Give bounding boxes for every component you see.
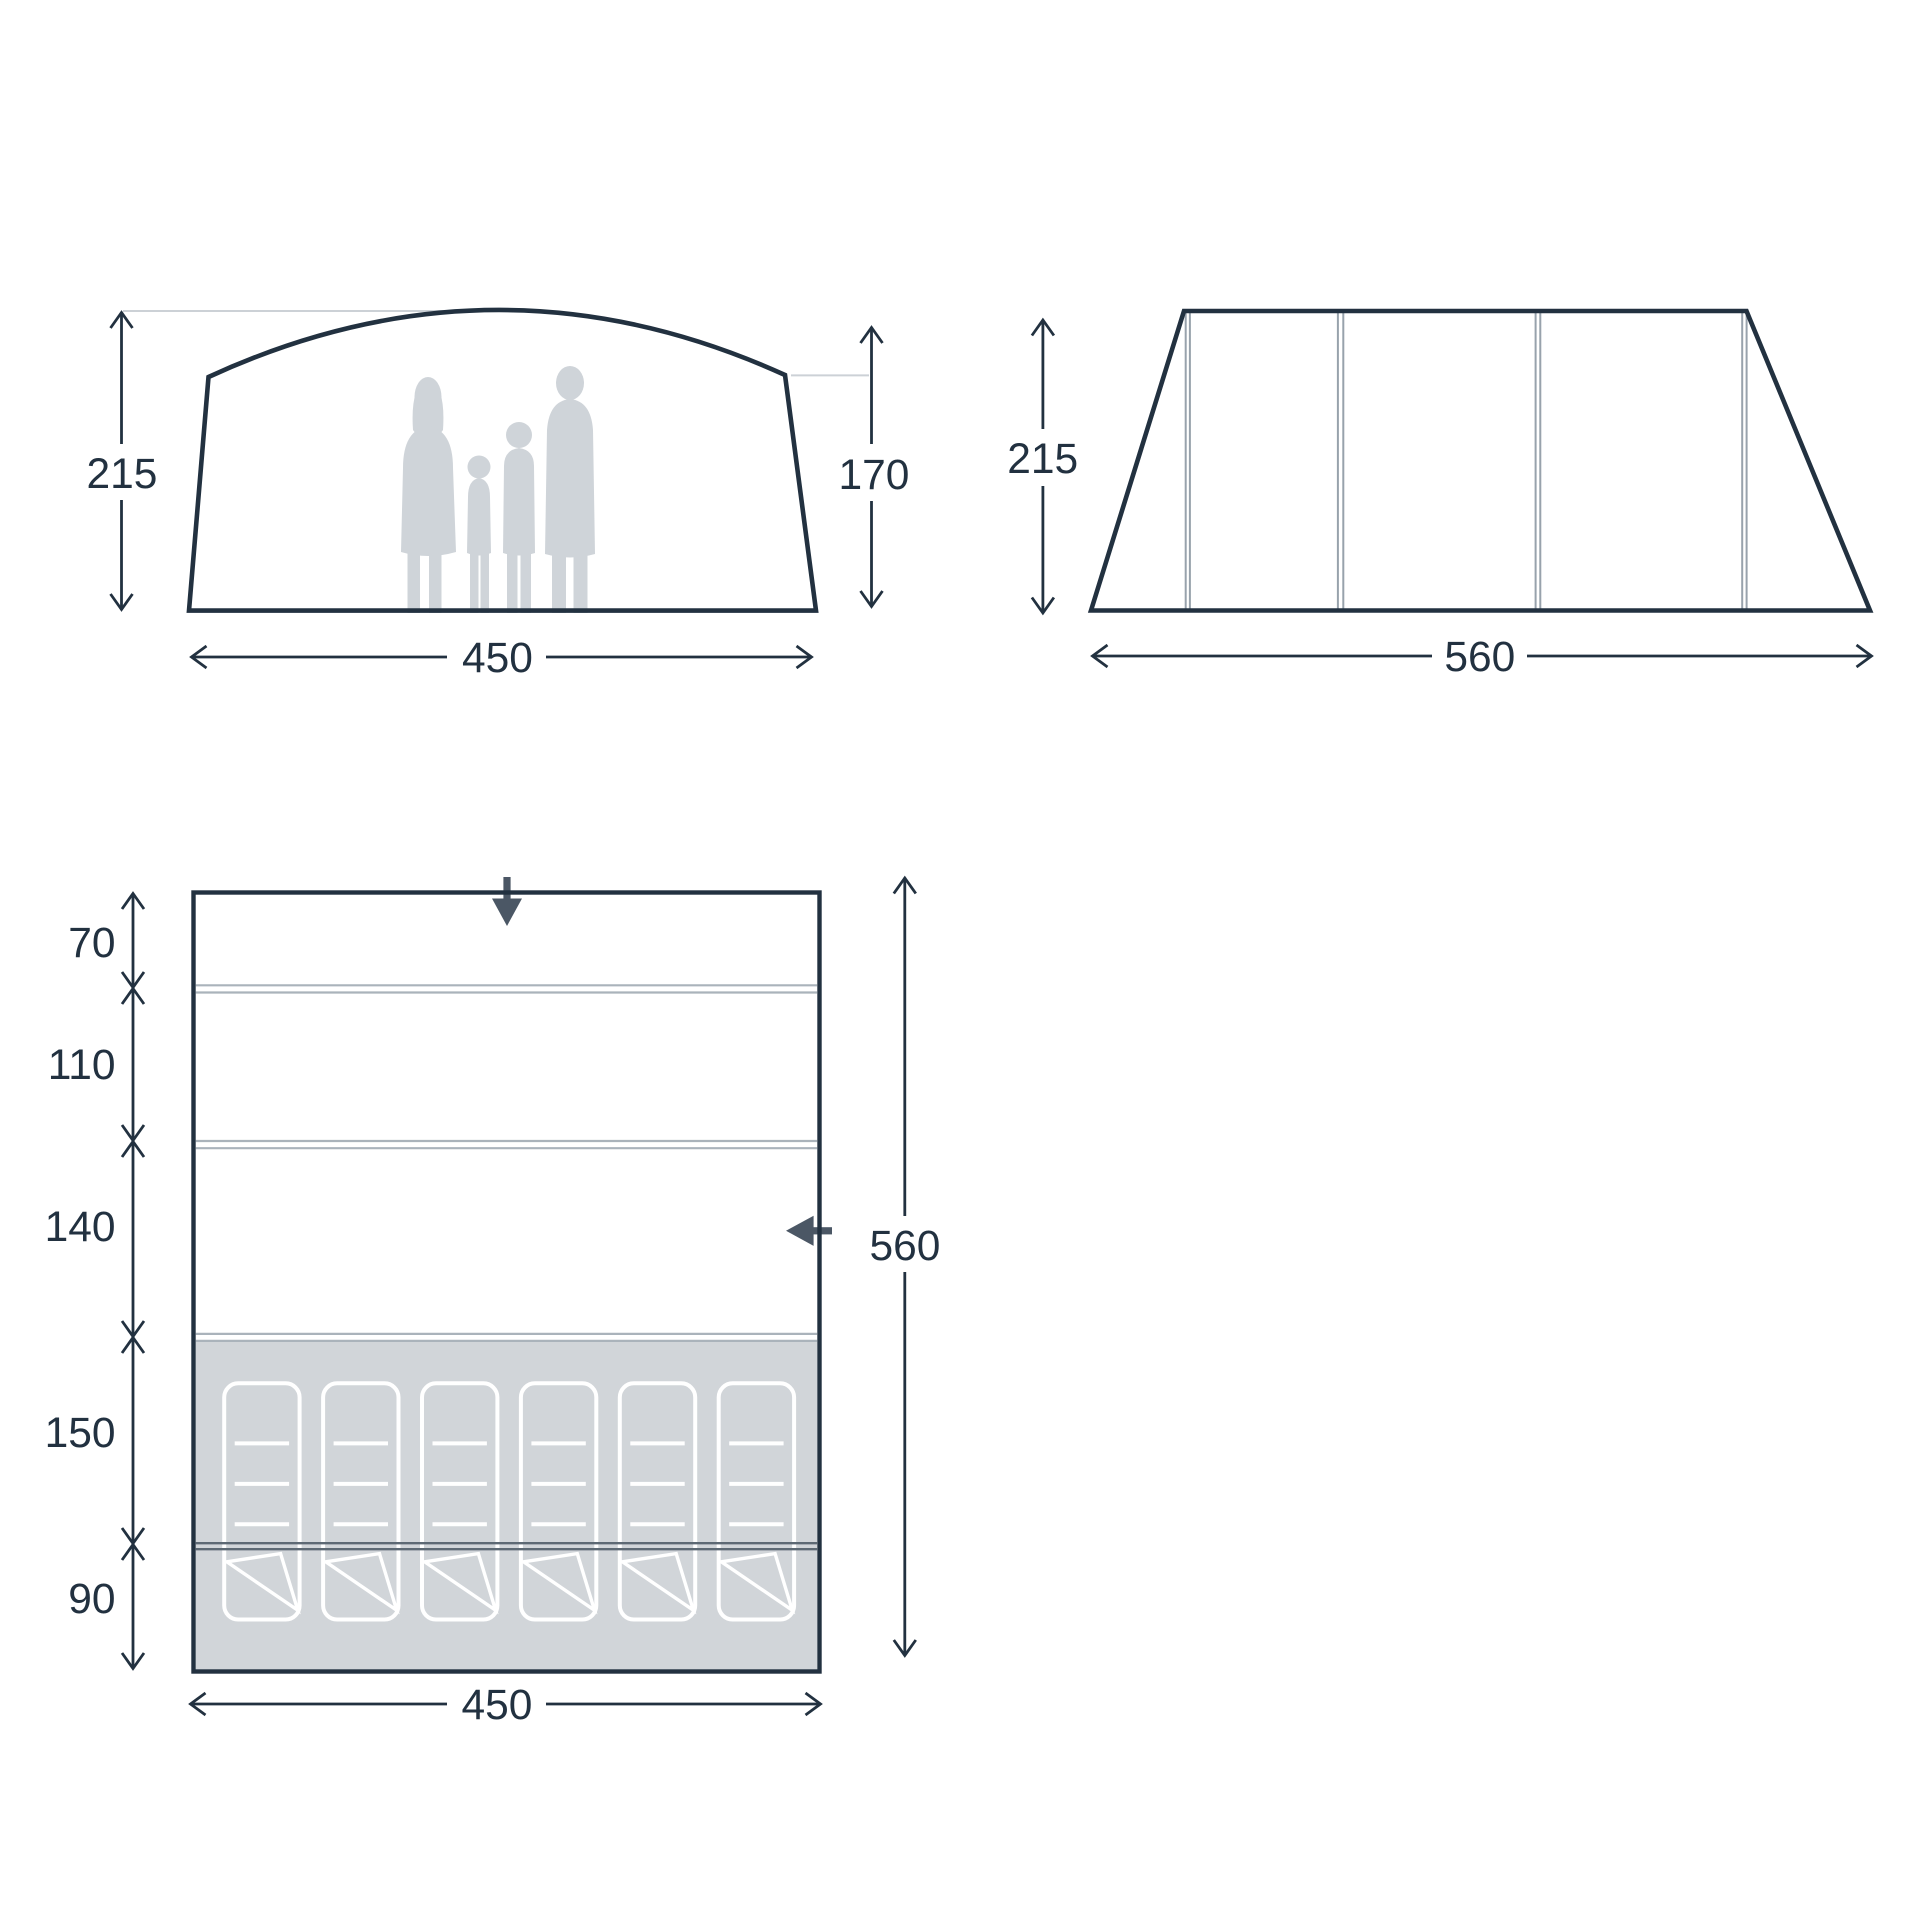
svg-text:110: 110 [48,1042,116,1089]
svg-text:215: 215 [87,451,158,498]
svg-text:90: 90 [68,1576,115,1623]
svg-text:150: 150 [45,1410,116,1457]
svg-text:560: 560 [1444,634,1515,681]
svg-text:450: 450 [462,1682,533,1729]
svg-text:215: 215 [1007,436,1078,483]
svg-text:140: 140 [45,1204,116,1251]
svg-text:560: 560 [870,1223,941,1270]
svg-text:70: 70 [68,920,115,967]
svg-text:170: 170 [839,452,910,499]
svg-text:450: 450 [462,635,533,682]
